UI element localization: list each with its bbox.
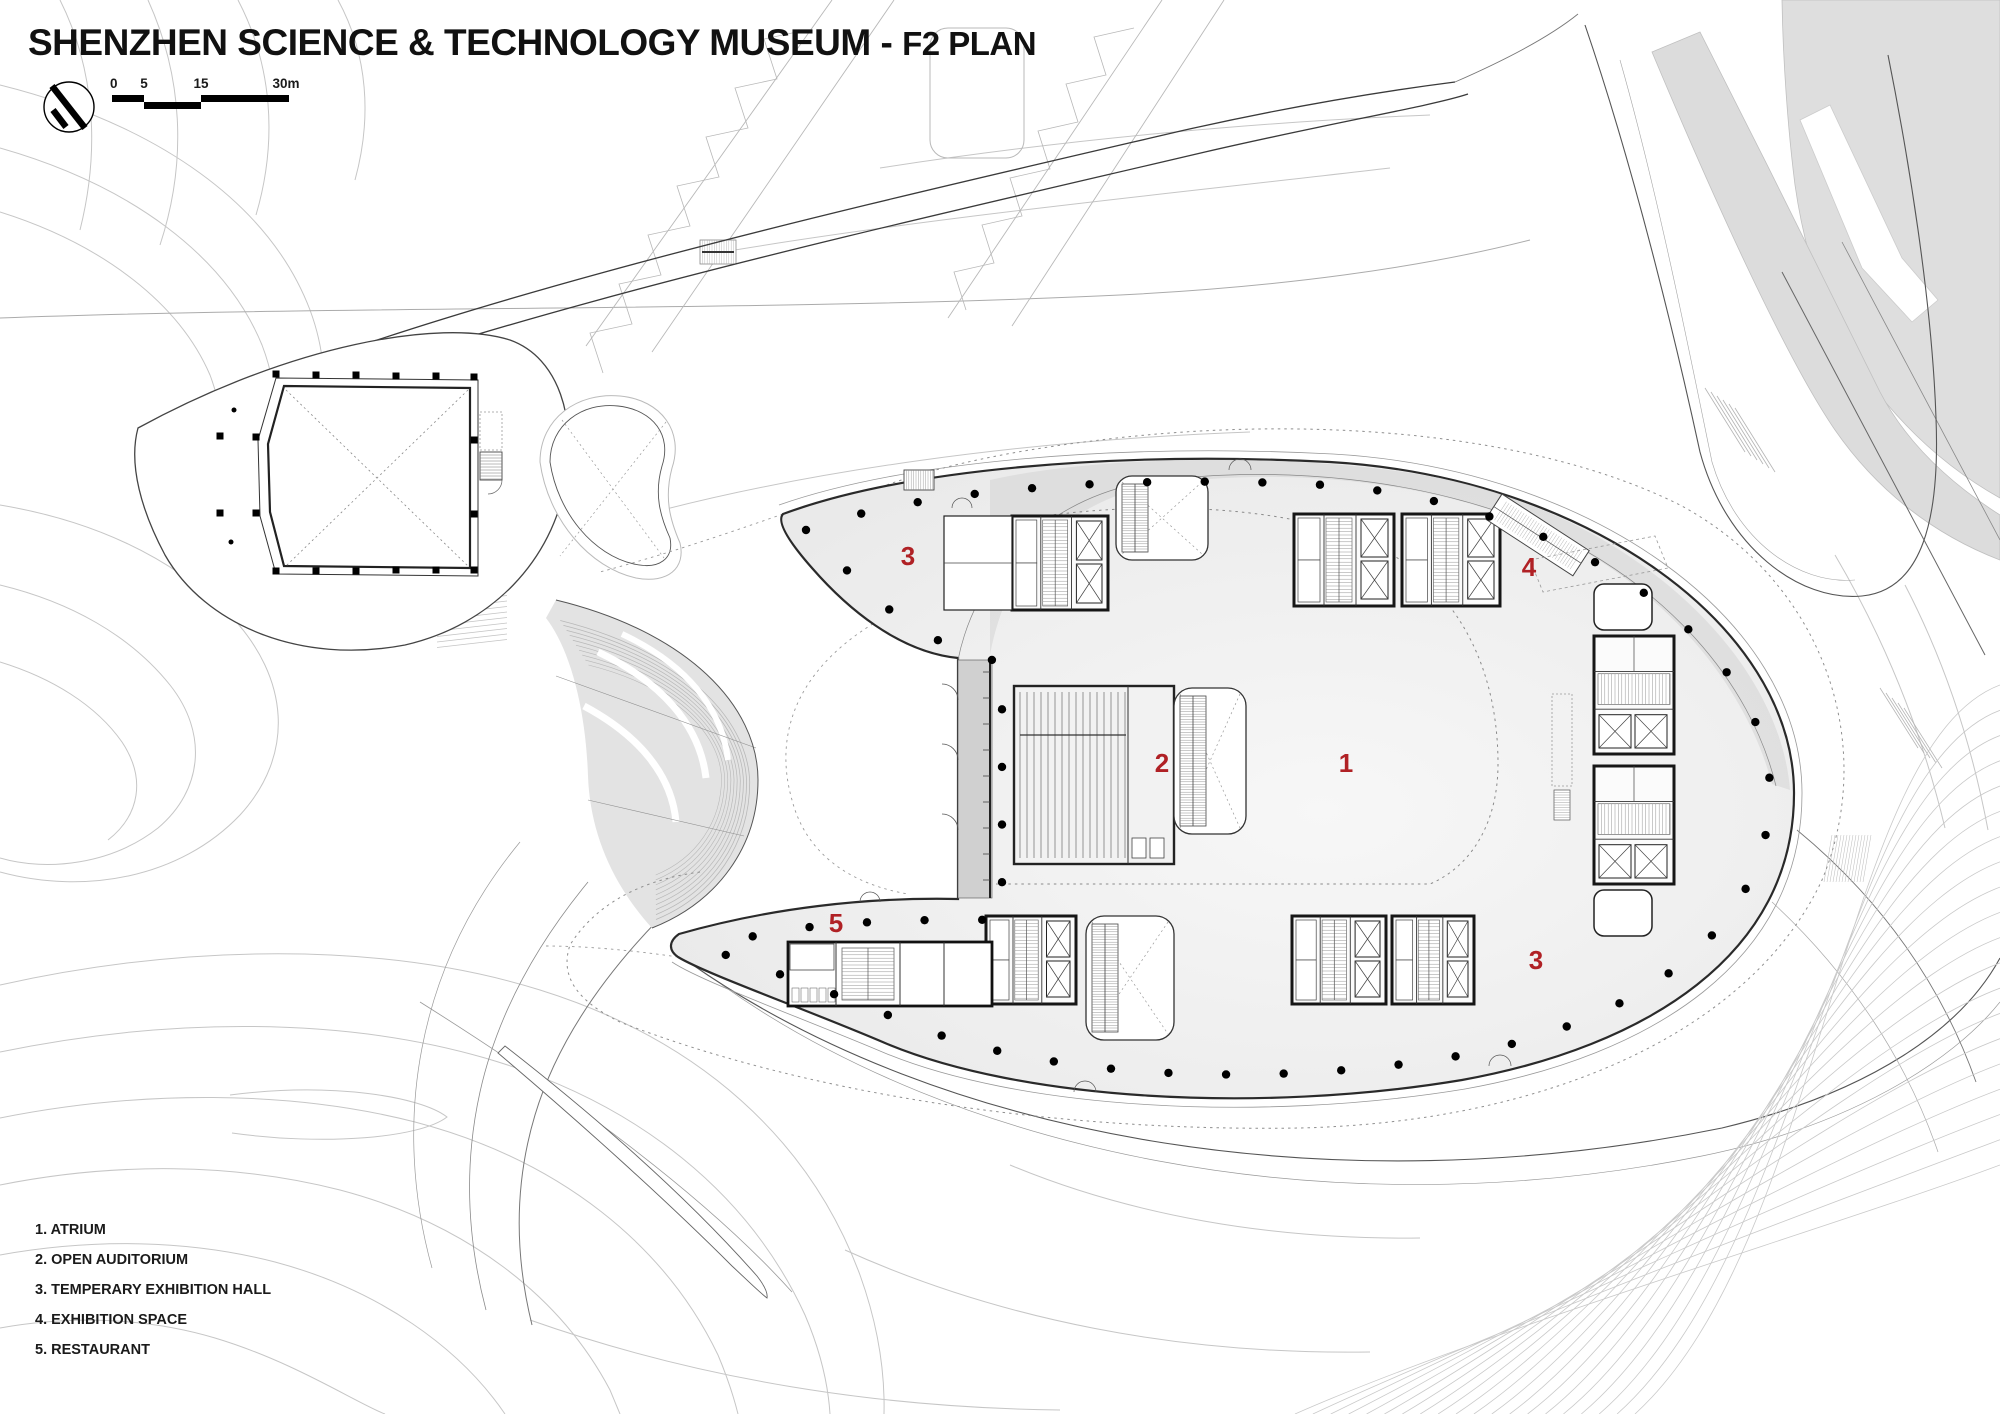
plan-label-1: 1 (1339, 750, 1353, 776)
amphitheater-steps (546, 600, 758, 928)
page-title: SHENZHEN SCIENCE & TECHNOLOGY MUSEUM - F… (28, 22, 1036, 64)
legend-item-3: 3. TEMPERARY EXHIBITION HALL (35, 1282, 271, 1298)
scale-bar: 0 5 15 30m (110, 76, 300, 116)
legend-item-1: 1. ATRIUM (35, 1222, 271, 1238)
legend: 1. ATRIUM2. OPEN AUDITORIUM3. TEMPERARY … (35, 1222, 271, 1372)
legend-item-5: 5. RESTAURANT (35, 1342, 271, 1358)
title-floor: F2 PLAN (902, 25, 1036, 62)
scale-tick: 0 (110, 76, 118, 91)
plan-label-2: 2 (1155, 750, 1169, 776)
pond (540, 396, 681, 580)
scale-tick: 30m (272, 76, 299, 91)
title-separator: - (871, 22, 902, 63)
scale-segment (144, 102, 201, 109)
scale-segment (112, 95, 144, 102)
plan-label-3: 3 (1529, 947, 1543, 973)
legend-item-4: 4. EXHIBITION SPACE (35, 1312, 271, 1328)
annex-hall (135, 333, 569, 650)
plan-label-3: 3 (901, 543, 915, 569)
floor-plan-page: { "title": { "main": "SHENZHEN SCIENCE &… (0, 0, 2000, 1414)
plan-label-5: 5 (829, 910, 843, 936)
scale-tick: 15 (193, 76, 208, 91)
site-plan-drawing (0, 0, 2000, 1414)
plan-label-4: 4 (1522, 554, 1536, 580)
north-arrow-icon (41, 79, 99, 137)
title-main: SHENZHEN SCIENCE & TECHNOLOGY MUSEUM (28, 22, 871, 63)
scale-segment (201, 95, 289, 102)
legend-item-2: 2. OPEN AUDITORIUM (35, 1252, 271, 1268)
scale-tick: 5 (140, 76, 148, 91)
